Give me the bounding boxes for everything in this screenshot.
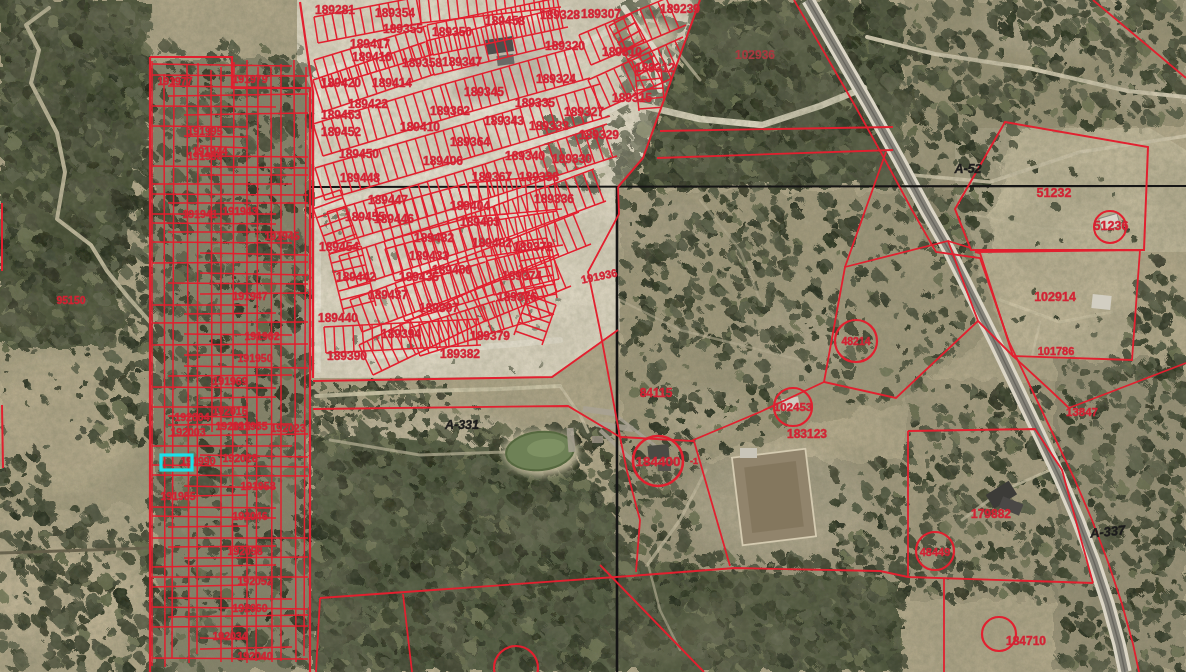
svg-text:192016: 192016 <box>212 405 247 417</box>
svg-text:189403: 189403 <box>460 215 500 229</box>
svg-text:189417: 189417 <box>350 37 390 51</box>
svg-text:189414: 189414 <box>372 76 412 90</box>
svg-text:189333: 189333 <box>529 119 569 133</box>
svg-text:189336: 189336 <box>534 192 574 206</box>
svg-text:189320: 189320 <box>545 39 585 53</box>
svg-text:189402: 189402 <box>472 236 512 250</box>
svg-text:192046: 192046 <box>232 510 267 522</box>
svg-text:192004: 192004 <box>174 411 209 423</box>
svg-text:191969: 191969 <box>212 375 247 387</box>
svg-text:48449: 48449 <box>920 546 951 558</box>
svg-text:189350: 189350 <box>432 25 472 39</box>
svg-text:95150: 95150 <box>56 294 85 306</box>
svg-text:189315: 189315 <box>612 91 652 105</box>
svg-text:191977: 191977 <box>157 75 192 87</box>
svg-text:191958: 191958 <box>240 480 275 492</box>
svg-text:192028: 192028 <box>222 452 257 464</box>
svg-text:189458: 189458 <box>485 14 525 28</box>
svg-text:189397: 189397 <box>419 301 459 315</box>
svg-text:191943: 191943 <box>222 205 257 217</box>
svg-text:191947: 191947 <box>232 290 267 302</box>
svg-text:192003: 192003 <box>170 426 205 438</box>
svg-text:189435: 189435 <box>399 270 439 284</box>
svg-text:189382: 189382 <box>440 347 480 361</box>
svg-text:189379: 189379 <box>470 329 510 343</box>
svg-text:189330: 189330 <box>552 152 592 166</box>
svg-text:189440: 189440 <box>318 311 358 325</box>
svg-text:189354: 189354 <box>375 6 415 20</box>
svg-text:189374: 189374 <box>502 269 542 283</box>
svg-text:189433: 189433 <box>409 249 449 263</box>
svg-text:189367: 189367 <box>472 170 512 184</box>
svg-text:189329: 189329 <box>579 128 619 142</box>
svg-text:189335: 189335 <box>515 96 555 110</box>
svg-text:189358: 189358 <box>402 56 442 70</box>
svg-text:179882: 179882 <box>971 507 1011 521</box>
svg-text:191945: 191945 <box>264 230 299 242</box>
svg-text:189452: 189452 <box>321 125 361 139</box>
svg-text:189406: 189406 <box>423 154 463 168</box>
svg-text:189327: 189327 <box>564 105 604 119</box>
svg-text:189450: 189450 <box>339 147 379 161</box>
svg-text:192052: 192052 <box>237 575 272 587</box>
svg-text:192060: 192060 <box>232 602 267 614</box>
svg-text:189454: 189454 <box>319 240 359 254</box>
svg-text:101786: 101786 <box>1038 345 1075 357</box>
svg-text:189343: 189343 <box>484 114 524 128</box>
svg-text:A-52: A-52 <box>953 162 981 176</box>
svg-text:183123: 183123 <box>787 427 827 441</box>
svg-text:189307: 189307 <box>581 7 621 21</box>
svg-text:189448: 189448 <box>340 171 380 185</box>
svg-text:189362: 189362 <box>430 104 470 118</box>
svg-text:102453: 102453 <box>774 401 812 413</box>
svg-text:189432: 189432 <box>414 231 454 245</box>
svg-text:102914: 102914 <box>1034 290 1076 304</box>
svg-text:189446: 189446 <box>374 212 414 226</box>
svg-text:191930: 191930 <box>187 150 222 162</box>
svg-text:191941: 191941 <box>182 208 217 220</box>
svg-text:192034: 192034 <box>212 630 247 642</box>
svg-text:189338: 189338 <box>519 170 559 184</box>
svg-text:189345: 189345 <box>464 85 504 99</box>
svg-text:189447: 189447 <box>368 193 408 207</box>
svg-text:189312: 189312 <box>635 61 675 75</box>
svg-text:191985: 191985 <box>160 490 195 502</box>
svg-text:189239: 189239 <box>660 2 700 16</box>
svg-text:192023: 192023 <box>270 422 305 434</box>
svg-text:191950: 191950 <box>237 352 272 364</box>
svg-text:189410: 189410 <box>400 120 440 134</box>
svg-text:51232: 51232 <box>1037 186 1072 200</box>
svg-text:51236: 51236 <box>1094 219 1129 233</box>
svg-text:189310: 189310 <box>602 45 642 59</box>
svg-text:184400: 184400 <box>635 454 680 469</box>
svg-text:84115: 84115 <box>640 386 673 400</box>
svg-text:189376: 189376 <box>497 290 537 304</box>
svg-text:184710: 184710 <box>1006 634 1046 648</box>
svg-text:192040: 192040 <box>237 650 272 662</box>
svg-text:189404: 189404 <box>450 199 490 213</box>
svg-text:189347: 189347 <box>442 55 482 69</box>
svg-text:189328: 189328 <box>540 8 580 22</box>
svg-text:189453: 189453 <box>321 108 361 122</box>
svg-text:102936: 102936 <box>735 48 775 62</box>
svg-text:13847: 13847 <box>1066 406 1098 418</box>
svg-text:48214: 48214 <box>841 335 870 347</box>
svg-text:189324: 189324 <box>536 72 576 86</box>
svg-text:192015: 192015 <box>215 420 250 432</box>
svg-text:189394: 189394 <box>381 327 421 341</box>
svg-text:189442: 189442 <box>336 270 376 284</box>
svg-text:191979: 191979 <box>232 73 267 85</box>
svg-text:189416: 189416 <box>352 50 392 64</box>
svg-text:192058: 192058 <box>227 545 262 557</box>
svg-text:189437: 189437 <box>368 288 408 302</box>
svg-text:189390: 189390 <box>327 349 367 363</box>
svg-text:191990: 191990 <box>180 455 215 467</box>
svg-text:189355: 189355 <box>383 22 423 36</box>
svg-text:189340: 189340 <box>505 149 545 163</box>
svg-text:189364: 189364 <box>450 135 490 149</box>
svg-text:189420: 189420 <box>321 76 361 90</box>
svg-text:189372: 189372 <box>513 240 553 254</box>
svg-text:A-331: A-331 <box>444 418 479 432</box>
svg-text:189281: 189281 <box>315 3 355 17</box>
svg-text:191962: 191962 <box>244 330 279 342</box>
svg-text:191995: 191995 <box>187 125 222 137</box>
svg-text:-1: -1 <box>690 456 698 466</box>
